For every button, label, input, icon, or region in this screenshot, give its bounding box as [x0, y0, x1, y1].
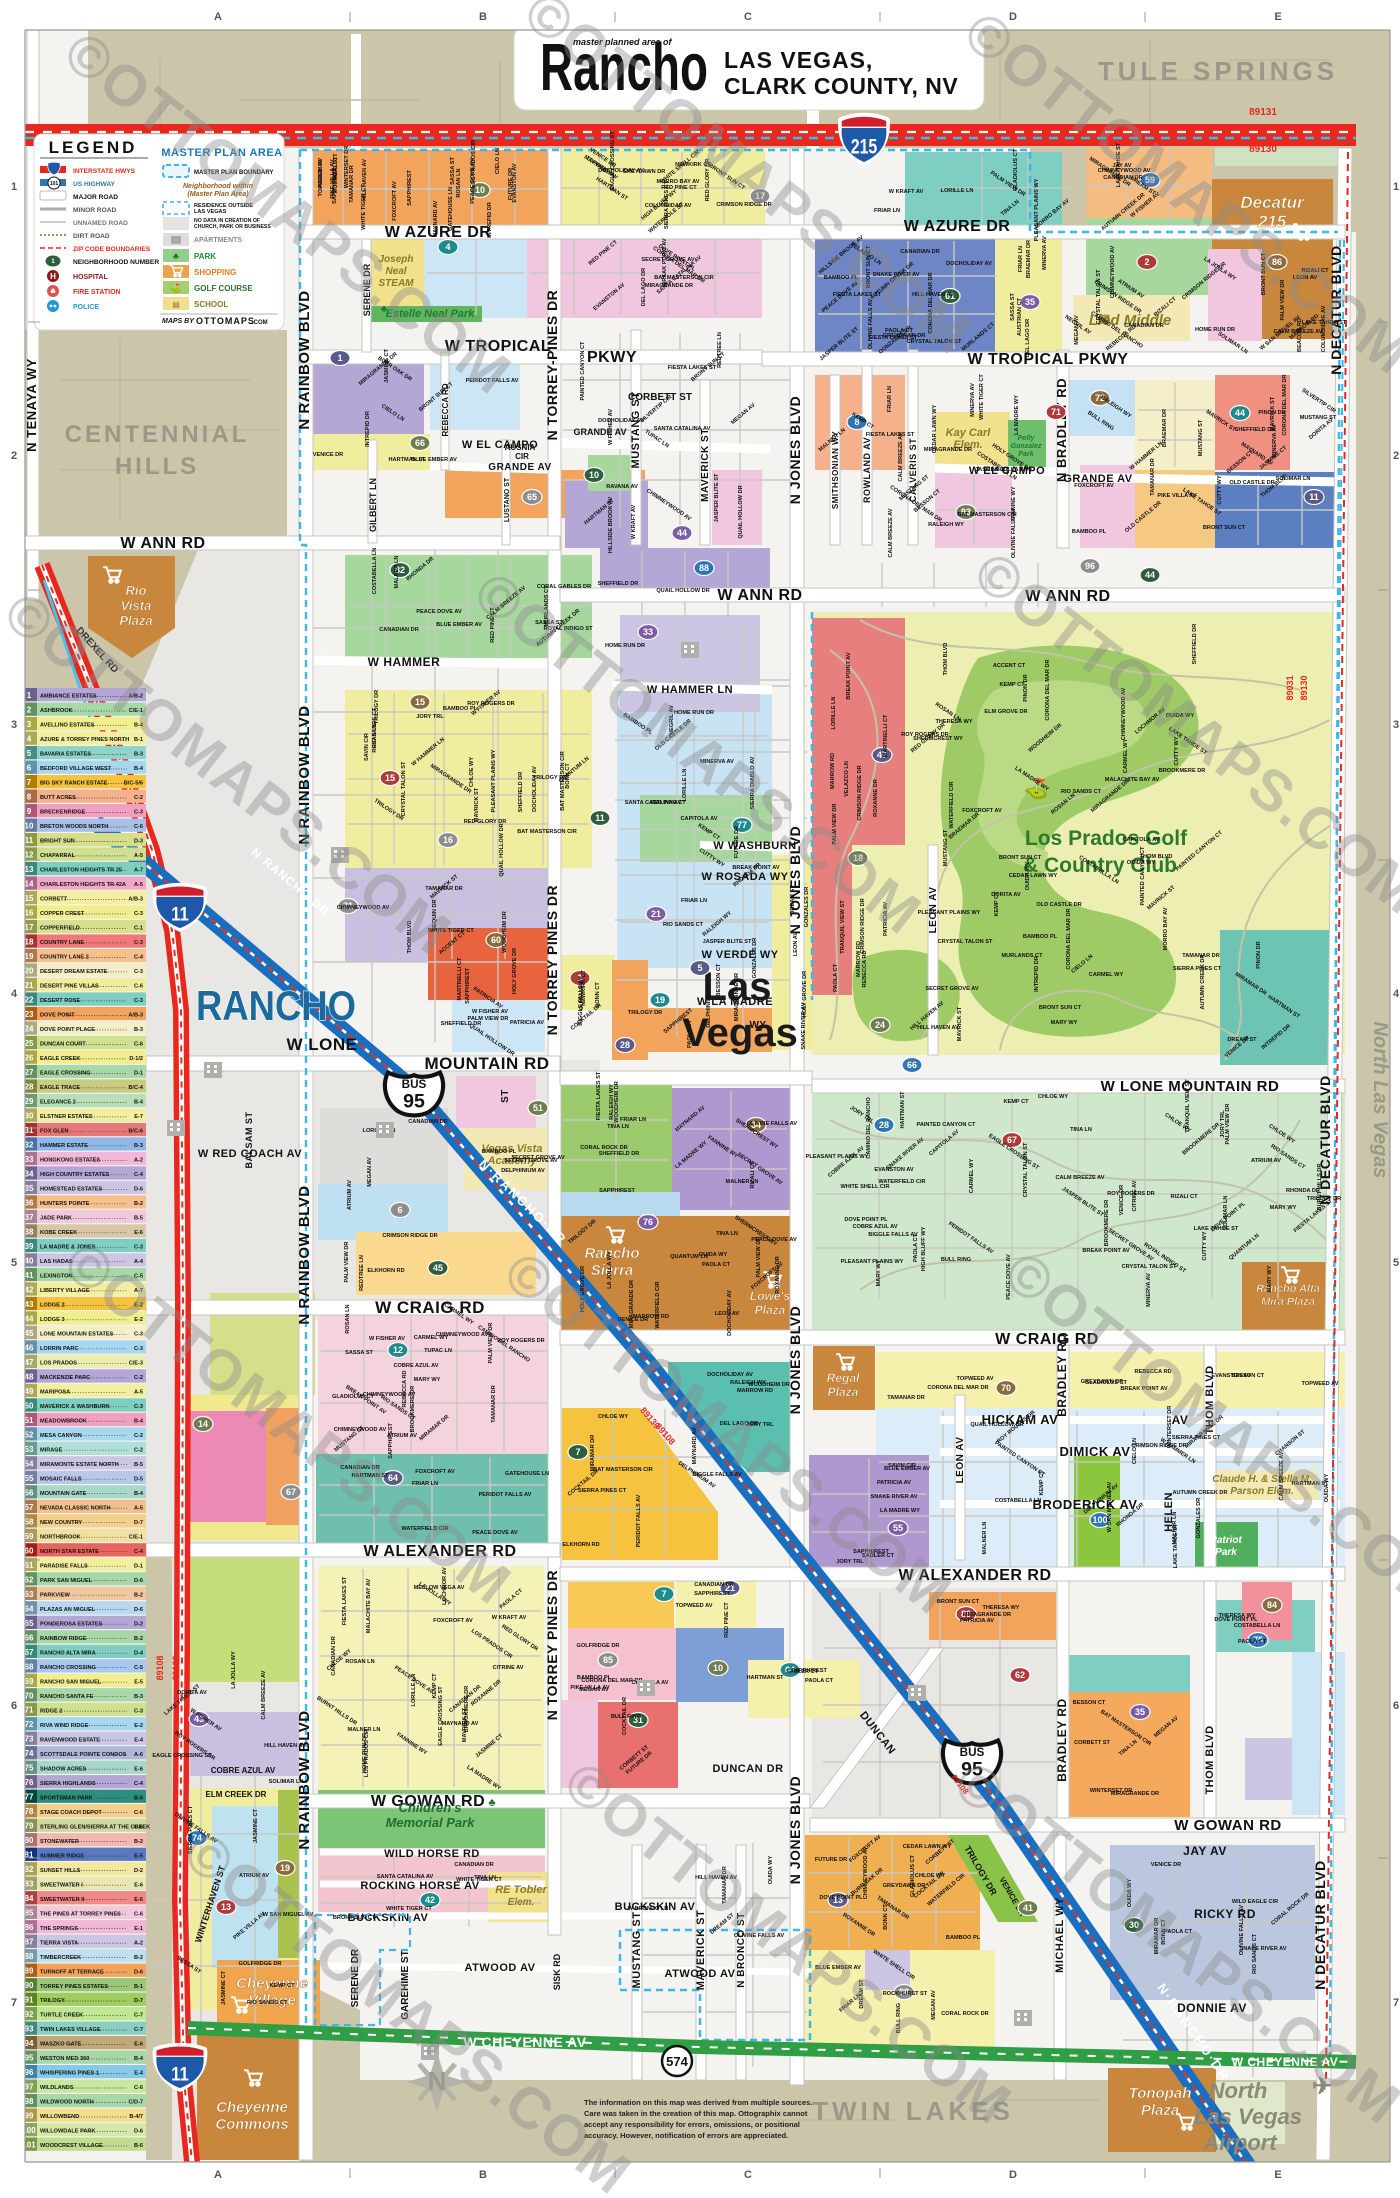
svg-text:66: 66	[907, 1060, 917, 1070]
svg-text:MARROW RD: MARROW RD	[737, 1388, 773, 1394]
svg-text:NORTHBROOK: NORTHBROOK	[40, 1534, 81, 1540]
svg-text:Regal: Regal	[827, 1371, 860, 1385]
svg-text:PAOLA CT: PAOLA CT	[805, 1678, 834, 1684]
svg-text:PATRICIA AV: PATRICIA AV	[510, 1020, 544, 1026]
svg-text:SECRET GROVE AV: SECRET GROVE AV	[925, 986, 978, 992]
svg-text:D-3: D-3	[134, 839, 143, 845]
svg-text:COUNTRY LANE: COUNTRY LANE	[40, 940, 84, 946]
svg-text:6: 6	[397, 1205, 402, 1215]
svg-text:CARMEL WY: CARMEL WY	[1123, 739, 1129, 774]
svg-text:AUTUMN CREEK DR: AUTUMN CREEK DR	[1172, 1490, 1227, 1496]
svg-text:B-5: B-5	[134, 1462, 143, 1468]
svg-text:28: 28	[620, 1040, 630, 1050]
svg-text:SHADOW ACRES: SHADOW ACRES	[40, 1766, 87, 1772]
svg-text:RALEIGH WY: RALEIGH WY	[609, 1084, 615, 1120]
svg-text:INTREPID DR: INTREPID DR	[487, 202, 493, 238]
svg-text:EAGLE TRACE: EAGLE TRACE	[40, 1085, 80, 1091]
svg-text:COBRE AZUL AV: COBRE AZUL AV	[852, 1224, 897, 1230]
svg-text:N RAINBOW BLVD: N RAINBOW BLVD	[296, 290, 313, 429]
svg-text:LEON AV: LEON AV	[955, 1437, 966, 1484]
svg-text:PKWY: PKWY	[587, 349, 637, 366]
svg-text:LOS PRADOS CIR: LOS PRADOS CIR	[471, 140, 477, 188]
svg-text:53: 53	[25, 1445, 34, 1454]
svg-text:89131: 89131	[1249, 107, 1277, 118]
svg-text:A-5: A-5	[134, 1505, 143, 1511]
svg-text:MUSTANG ST: MUSTANG ST	[631, 1912, 643, 1989]
svg-text:A-2: A-2	[134, 1158, 143, 1164]
svg-text:WHITE TIGER CT: WHITE TIGER CT	[386, 1906, 432, 1912]
svg-text:WOODHEIM DR: WOODHEIM DR	[748, 1382, 790, 1388]
svg-text:W FISHER AV: W FISHER AV	[369, 1336, 405, 1342]
svg-text:OUIDA WY: OUIDA WY	[768, 1856, 774, 1885]
svg-text:B-3: B-3	[134, 752, 143, 758]
svg-text:RHONDA DR: RHONDA DR	[1286, 1188, 1320, 1194]
svg-text:52: 52	[25, 1430, 34, 1439]
svg-text:27: 27	[25, 1068, 34, 1077]
svg-text:SNAKE RIVER AV: SNAKE RIVER AV	[801, 1002, 807, 1049]
svg-text:CARMEL WY: CARMEL WY	[1089, 972, 1124, 978]
svg-text:C-3: C-3	[134, 1245, 143, 1251]
svg-text:CRIMSON RIDGE DR: CRIMSON RIDGE DR	[382, 1233, 437, 1239]
svg-text:CANADIAN DR: CANADIAN DR	[454, 1862, 493, 1868]
svg-text:BESSON CT: BESSON CT	[716, 963, 722, 996]
svg-text:LUSTANO ST: LUSTANO ST	[504, 477, 511, 522]
svg-text:50: 50	[25, 1401, 34, 1410]
svg-text:W EL CAMPO: W EL CAMPO	[462, 439, 538, 451]
svg-text:C-3: C-3	[134, 998, 143, 1004]
svg-text:69: 69	[25, 1677, 34, 1686]
svg-text:11: 11	[595, 813, 605, 823]
svg-text:58: 58	[25, 1517, 34, 1526]
svg-text:DELPHINIUM AV: DELPHINIUM AV	[501, 1168, 545, 1174]
svg-text:2: 2	[1393, 450, 1399, 462]
svg-text:REBECCA RD: REBECCA RD	[862, 950, 868, 987]
svg-text:Plaza: Plaza	[828, 1385, 859, 1399]
svg-text:COSTABELLA LN: COSTABELLA LN	[372, 548, 378, 595]
svg-text:101: 101	[50, 181, 59, 187]
svg-text:28: 28	[25, 1083, 34, 1092]
svg-text:29: 29	[25, 1097, 34, 1106]
svg-text:C: C	[744, 2169, 752, 2181]
svg-text:BRONT SUN CT: BRONT SUN CT	[1039, 1005, 1082, 1011]
svg-text:7: 7	[661, 1589, 666, 1599]
svg-text:DUNCAN COURT: DUNCAN COURT	[40, 1042, 86, 1048]
svg-text:ROSAN LN: ROSAN LN	[345, 1659, 374, 1665]
svg-text:GOLFRIDGE DR: GOLFRIDGE DR	[577, 1643, 620, 1649]
svg-text:B/C-4: B/C-4	[128, 1085, 143, 1091]
svg-text:W TROPICAL PKWY: W TROPICAL PKWY	[968, 351, 1129, 368]
svg-text:DREAM ST: DREAM ST	[790, 885, 796, 915]
svg-text:E-6: E-6	[134, 1230, 143, 1236]
svg-text:MAYNARD AV: MAYNARD AV	[442, 1721, 479, 1727]
svg-text:44: 44	[25, 1314, 34, 1323]
svg-text:COPPER CREST: COPPER CREST	[40, 911, 85, 917]
svg-text:B-5: B-5	[134, 1216, 143, 1222]
svg-text:94: 94	[25, 2039, 34, 2048]
svg-text:C-6: C-6	[134, 1042, 143, 1048]
svg-text:TRILOGY DR: TRILOGY DR	[533, 775, 567, 781]
svg-text:BREAK POINT AV: BREAK POINT AV	[846, 652, 852, 700]
svg-text:51: 51	[533, 1103, 543, 1113]
svg-text:B-1: B-1	[134, 1984, 143, 1990]
svg-text:RED PINE CT: RED PINE CT	[661, 185, 697, 191]
svg-text:BONN CT: BONN CT	[595, 982, 601, 1008]
svg-text:N TORREY PINES DR: N TORREY PINES DR	[544, 885, 560, 1035]
svg-text:11: 11	[171, 903, 189, 924]
svg-text:ACCENT CT: ACCENT CT	[993, 663, 1026, 669]
svg-text:MORRO BAY AV: MORRO BAY AV	[1163, 907, 1169, 950]
svg-text:72: 72	[25, 1720, 34, 1729]
svg-text:PATRICIA AV: PATRICIA AV	[960, 1618, 994, 1624]
svg-text:BAT MASTERSON CIR: BAT MASTERSON CIR	[957, 512, 1017, 518]
svg-text:MAVERICK ST: MAVERICK ST	[700, 428, 711, 502]
svg-text:RED PINE CT: RED PINE CT	[724, 1602, 730, 1638]
svg-text:MOUNTAIN GATE: MOUNTAIN GATE	[40, 1491, 87, 1497]
svg-text:CAPITOLA AV: CAPITOLA AV	[1123, 837, 1160, 843]
svg-text:D-1: D-1	[134, 1563, 143, 1569]
svg-text:CALM BREEZE AV: CALM BREEZE AV	[261, 1670, 267, 1719]
svg-text:38: 38	[25, 1227, 34, 1236]
svg-text:DEL LAGO DR: DEL LAGO DR	[641, 268, 647, 306]
svg-text:LEGEND: LEGEND	[49, 138, 138, 157]
svg-text:HOME RUN DR: HOME RUN DR	[1195, 327, 1235, 333]
svg-text:B-2: B-2	[134, 1201, 143, 1207]
svg-text:SOLIMAR LN: SOLIMAR LN	[1276, 476, 1311, 482]
svg-text:ST: ST	[500, 1089, 511, 1103]
svg-text:THOM BLVD: THOM BLVD	[943, 643, 949, 676]
svg-text:C-4: C-4	[134, 1781, 144, 1787]
svg-text:FOXCROFT AV: FOXCROFT AV	[392, 181, 398, 221]
svg-text:W LONE: W LONE	[287, 1035, 358, 1054]
svg-text:JAY AV: JAY AV	[1183, 1844, 1227, 1858]
svg-text:MEGAN AV: MEGAN AV	[367, 1157, 373, 1187]
svg-text:KEMP CT: KEMP CT	[269, 1983, 295, 1989]
svg-text:SASSA ST: SASSA ST	[345, 1350, 373, 1356]
svg-text:DIMICK AV: DIMICK AV	[1060, 1444, 1131, 1459]
svg-text:THE SPRINGS: THE SPRINGS	[40, 1926, 78, 1932]
svg-text:C-2: C-2	[134, 1447, 143, 1453]
svg-text:RIO SANDS CT: RIO SANDS CT	[663, 922, 704, 928]
svg-text:Children's: Children's	[398, 1800, 461, 1815]
svg-text:67: 67	[1007, 1135, 1017, 1145]
svg-text:Las Vegas: Las Vegas	[1194, 2104, 1302, 2129]
svg-text:FRIAR LN: FRIAR LN	[874, 208, 900, 214]
svg-text:▤: ▤	[172, 300, 180, 309]
svg-text:PONDEROSA ESTATES: PONDEROSA ESTATES	[40, 1621, 103, 1627]
svg-text:RAINBOW RIDGE: RAINBOW RIDGE	[40, 1636, 87, 1642]
svg-text:10: 10	[25, 822, 34, 831]
svg-text:RAVENWOOD ESTATE: RAVENWOOD ESTATE	[40, 1737, 100, 1743]
svg-text:75: 75	[25, 1764, 34, 1773]
svg-text:TIMBERCREEK: TIMBERCREEK	[40, 1955, 81, 1961]
svg-text:E-2: E-2	[134, 1723, 143, 1729]
svg-text:C-6: C-6	[134, 2085, 143, 2091]
svg-text:MINERVA AV: MINERVA AV	[970, 383, 976, 417]
svg-text:HARTMAN ST: HARTMAN ST	[900, 1091, 906, 1129]
svg-text:E-6: E-6	[134, 1897, 143, 1903]
svg-text:Patriot: Patriot	[1210, 1535, 1242, 1546]
svg-text:PAOLA CT: PAOLA CT	[702, 1262, 731, 1268]
svg-text:9: 9	[27, 807, 32, 816]
svg-text:ROWLAND AV: ROWLAND AV	[862, 437, 872, 503]
svg-text:89130: 89130	[1299, 675, 1309, 700]
svg-text:AUTUMN CREEK DR: AUTUMN CREEK DR	[1200, 954, 1206, 1009]
svg-text:PLEASANT PLAINS WY: PLEASANT PLAINS WY	[491, 749, 497, 812]
svg-text:RIZALI CT: RIZALI CT	[1170, 1194, 1198, 1200]
svg-text:SHEFFIELD DR: SHEFFIELD DR	[518, 772, 524, 813]
svg-text:TULE SPRINGS: TULE SPRINGS	[1098, 56, 1338, 86]
svg-text:85: 85	[25, 1909, 34, 1918]
svg-text:TURNOFF AT TERRACE: TURNOFF AT TERRACE	[40, 1969, 104, 1975]
svg-text:SASSA ST: SASSA ST	[1010, 293, 1016, 321]
svg-text:MARY WY: MARY WY	[1267, 1265, 1273, 1292]
svg-text:LORILLE LN: LORILLE LN	[941, 188, 974, 194]
svg-text:CAPITOLA AV: CAPITOLA AV	[681, 816, 718, 822]
svg-text:GREYDAWN DR: GREYDAWN DR	[623, 169, 666, 175]
svg-text:4: 4	[27, 735, 32, 744]
svg-text:SASSA ST: SASSA ST	[450, 157, 456, 185]
svg-text:CANADIAN DR: CANADIAN DR	[379, 627, 418, 633]
svg-text:96: 96	[25, 2068, 34, 2077]
svg-text:51: 51	[25, 1416, 34, 1425]
svg-text:D-7: D-7	[134, 1998, 143, 2004]
svg-text:HOLY GROVE DR: HOLY GROVE DR	[512, 948, 518, 994]
svg-text:RIO SANDS CT: RIO SANDS CT	[247, 2000, 288, 2006]
svg-text:56: 56	[25, 1488, 34, 1497]
svg-text:♣: ♣	[488, 1797, 495, 1809]
svg-text:LODGE 3: LODGE 3	[40, 1317, 65, 1323]
svg-text:PEACE DOVE AV: PEACE DOVE AV	[751, 1237, 797, 1243]
svg-text:PINON DR: PINON DR	[1023, 674, 1029, 701]
svg-text:SAPPHIREST: SAPPHIREST	[694, 1591, 730, 1597]
svg-text:KOBE CREEK: KOBE CREEK	[40, 1230, 77, 1236]
svg-text:76: 76	[643, 1217, 653, 1227]
svg-text:H: H	[50, 272, 56, 281]
svg-text:SANTA CATALINA AV: SANTA CATALINA AV	[377, 1874, 434, 1880]
svg-text:TUPAC LN: TUPAC LN	[424, 1348, 452, 1354]
svg-text:BONN CT: BONN CT	[883, 1904, 889, 1930]
svg-text:Tonopah: Tonopah	[1129, 2085, 1192, 2102]
svg-text:W HAMMER: W HAMMER	[368, 655, 441, 669]
svg-text:W VERDE WY: W VERDE WY	[701, 949, 778, 961]
svg-text:HILL HAVEN AV: HILL HAVEN AV	[264, 1743, 306, 1749]
svg-text:BIGGLE FALLS AV: BIGGLE FALLS AV	[868, 1232, 918, 1238]
svg-text:Park: Park	[1018, 451, 1034, 458]
svg-text:15: 15	[385, 773, 395, 783]
svg-text:BAMBOO PL: BAMBOO PL	[1023, 934, 1058, 940]
svg-text:A-6: A-6	[134, 1752, 143, 1758]
svg-text:W FISHER AV: W FISHER AV	[608, 409, 614, 445]
svg-text:MARY WY: MARY WY	[1270, 1205, 1297, 1211]
svg-text:VENICE DR: VENICE DR	[313, 452, 343, 458]
svg-text:C/D-7: C/D-7	[128, 2100, 143, 2106]
svg-text:HILLSIDE BROOK AV: HILLSIDE BROOK AV	[608, 496, 614, 553]
svg-text:HOSPITAL: HOSPITAL	[73, 274, 109, 281]
svg-text:15: 15	[25, 894, 34, 903]
svg-text:FUTURE DR: FUTURE DR	[815, 1857, 847, 1863]
svg-text:CALM BREEZE AV: CALM BREEZE AV	[898, 432, 904, 481]
svg-text:19: 19	[655, 995, 665, 1005]
svg-text:AUSTRIAN CT: AUSTRIAN CT	[1017, 297, 1023, 335]
svg-text:CANADIAN DR: CANADIAN DR	[1124, 323, 1163, 329]
svg-text:A-5: A-5	[134, 1390, 143, 1396]
svg-text:COBRE AZUL AV: COBRE AZUL AV	[211, 1766, 276, 1775]
svg-text:SCOTTSDALE POINTE CONDOS: SCOTTSDALE POINTE CONDOS	[40, 1752, 127, 1758]
svg-text:42: 42	[25, 1285, 34, 1294]
svg-text:GONZALES DR: GONZALES DR	[752, 938, 758, 979]
svg-text:CALM BREEZE AV: CALM BREEZE AV	[1055, 1175, 1104, 1181]
svg-text:W ANN RD: W ANN RD	[717, 587, 802, 604]
svg-text:25: 25	[25, 1039, 34, 1048]
svg-text:67: 67	[286, 1487, 296, 1497]
svg-text:B-2: B-2	[134, 1636, 143, 1642]
svg-text:Lowe's: Lowe's	[750, 1289, 791, 1303]
svg-text:CRYSTAL TALON ST: CRYSTAL TALON ST	[938, 939, 993, 945]
svg-text:PAOLA CT: PAOLA CT	[833, 963, 839, 992]
svg-text:WHITE TIGER CT: WHITE TIGER CT	[979, 374, 985, 420]
svg-text:E-7: E-7	[134, 1114, 143, 1120]
svg-text:C-4: C-4	[134, 1549, 144, 1555]
svg-text:COLUMBIDAE AV: COLUMBIDAE AV	[645, 203, 692, 209]
svg-text:CORAL GABLES DR: CORAL GABLES DR	[537, 584, 591, 590]
svg-text:MIRAGRANDE DR: MIRAGRANDE DR	[963, 1612, 1011, 1618]
svg-text:HIGH BLUFF WY: HIGH BLUFF WY	[921, 1227, 927, 1272]
svg-text:GONZALES DR: GONZALES DR	[1196, 1498, 1202, 1539]
svg-text:23: 23	[25, 1010, 34, 1019]
svg-text:90: 90	[25, 1981, 34, 1990]
svg-text:CAMINO DEL RANCHO: CAMINO DEL RANCHO	[866, 1097, 872, 1159]
svg-text:HONGKONG ESTATES: HONGKONG ESTATES	[40, 1158, 100, 1164]
svg-text:RAVANA AV: RAVANA AV	[606, 484, 638, 490]
svg-text:TAMANAR DR: TAMANAR DR	[887, 1395, 925, 1401]
svg-text:PAOLA CT: PAOLA CT	[1238, 1639, 1267, 1645]
svg-text:CEDAR LAWN WY: CEDAR LAWN WY	[1009, 873, 1058, 879]
svg-text:BAMBOO PL: BAMBOO PL	[482, 1149, 517, 1155]
svg-text:98: 98	[25, 2097, 34, 2106]
svg-text:WILDWOOD NORTH: WILDWOOD NORTH	[40, 2100, 94, 2106]
svg-text:22: 22	[25, 996, 34, 1005]
svg-text:83: 83	[25, 1880, 34, 1889]
svg-text:QUAIL HOLLOW DR: QUAIL HOLLOW DR	[656, 588, 709, 594]
svg-text:D-6: D-6	[134, 1969, 143, 1975]
svg-text:W KRAFT AV: W KRAFT AV	[631, 504, 637, 539]
svg-text:MARY WY: MARY WY	[414, 1377, 441, 1383]
svg-text:97: 97	[25, 2083, 34, 2092]
svg-text:CHLOE WY: CHLOE WY	[1038, 1094, 1068, 1100]
svg-text:PALM VIEW DR: PALM VIEW DR	[468, 1016, 509, 1022]
svg-text:CHLOE WY: CHLOE WY	[469, 757, 475, 787]
svg-text:COSTABELLA LN: COSTABELLA LN	[1234, 1623, 1281, 1629]
svg-text:MAVERICK & WASHBURN: MAVERICK & WASHBURN	[40, 1404, 110, 1410]
svg-text:B-2: B-2	[134, 1955, 143, 1961]
svg-text:SIERRA PINES CT: SIERRA PINES CT	[578, 1488, 627, 1494]
svg-text:THERESA WY: THERESA WY	[1218, 1613, 1255, 1619]
svg-text:C-3: C-3	[134, 1708, 143, 1714]
svg-text:CORONA DEL MAR DR: CORONA DEL MAR DR	[1045, 659, 1051, 720]
svg-text:AZURE & TORREY PINES NORTH: AZURE & TORREY PINES NORTH	[40, 737, 129, 743]
svg-text:WILD HORSE RD: WILD HORSE RD	[384, 1848, 480, 1860]
svg-text:BAVARIA ESTATES: BAVARIA ESTATES	[40, 752, 91, 758]
svg-text:ATWOOD AV: ATWOOD AV	[465, 1962, 536, 1974]
svg-text:A: A	[214, 2169, 222, 2181]
svg-text:BIGGLE FALLS AV: BIGGLE FALLS AV	[578, 976, 584, 1026]
svg-text:35: 35	[1135, 1707, 1145, 1717]
svg-text:DUNCAN DR: DUNCAN DR	[712, 1763, 783, 1775]
svg-text:HILL HAVEN AV: HILL HAVEN AV	[917, 1025, 959, 1031]
svg-text:MALACHITE BAY AV: MALACHITE BAY AV	[1105, 777, 1160, 783]
svg-text:CIELO LN: CIELO LN	[1132, 1438, 1138, 1464]
svg-text:ELM CREEK DR: ELM CREEK DR	[206, 1790, 267, 1799]
svg-text:HARTMAN ST: HARTMAN ST	[389, 457, 427, 463]
svg-text:JASMINE CT: JASMINE CT	[221, 1970, 227, 2004]
svg-text:MAVRICK ST: MAVRICK ST	[462, 1707, 468, 1742]
svg-text:41: 41	[25, 1271, 34, 1280]
svg-text:LEON AV: LEON AV	[715, 1311, 740, 1317]
svg-text:74: 74	[25, 1749, 34, 1758]
svg-text:5: 5	[697, 963, 702, 973]
svg-text:Kay Carl: Kay Carl	[946, 427, 992, 439]
svg-text:SAVIN CIR: SAVIN CIR	[888, 1463, 916, 1469]
svg-text:11: 11	[171, 2063, 189, 2084]
svg-text:PLEASANT PLAINS WY: PLEASANT PLAINS WY	[1034, 178, 1040, 241]
svg-text:TINA LN: TINA LN	[607, 1124, 629, 1130]
svg-text:CORONA DEL MAR DR: CORONA DEL MAR DR	[1066, 908, 1072, 969]
svg-text:CORONA DEL MAR DR: CORONA DEL MAR DR	[1282, 374, 1288, 435]
svg-text:CRYSTAL TALON ST: CRYSTAL TALON ST	[1096, 269, 1102, 324]
svg-text:⛳: ⛳	[170, 282, 181, 294]
svg-text:PERIDOT FALLS AV: PERIDOT FALLS AV	[479, 1492, 532, 1498]
svg-text:70: 70	[25, 1691, 34, 1700]
svg-text:COPPERFIELD: COPPERFIELD	[40, 926, 80, 932]
svg-text:CORBETT ST: CORBETT ST	[1074, 1740, 1110, 1746]
svg-text:4: 4	[445, 242, 450, 252]
svg-text:CANADIAN DR: CANADIAN DR	[900, 249, 939, 255]
svg-text:2: 2	[11, 450, 17, 462]
svg-text:B-3: B-3	[134, 1694, 143, 1700]
svg-text:BESSON CT: BESSON CT	[1073, 1700, 1106, 1706]
svg-text:APARTMENTS: APARTMENTS	[194, 237, 242, 244]
svg-text:C-6: C-6	[134, 1824, 143, 1830]
svg-text:TAMANAR DR: TAMANAR DR	[1150, 458, 1156, 496]
svg-text:C-2: C-2	[134, 1375, 143, 1381]
svg-text:FIESTA LAKES ST: FIESTA LAKES ST	[596, 1071, 602, 1120]
svg-text:B/C-5/6: B/C-5/6	[124, 781, 143, 787]
svg-text:SAPPHIREST: SAPPHIREST	[465, 968, 471, 1004]
svg-text:PARK: PARK	[194, 252, 216, 261]
svg-text:46: 46	[25, 1343, 34, 1352]
svg-text:E-5: E-5	[134, 1853, 143, 1859]
svg-text:OTTOMAPS: OTTOMAPS	[196, 316, 255, 326]
svg-text:FRIAR LN: FRIAR LN	[887, 386, 893, 412]
svg-text:49: 49	[25, 1387, 34, 1396]
svg-text:99: 99	[25, 2112, 34, 2121]
svg-text:CUTTY WY: CUTTY WY	[1217, 475, 1223, 504]
svg-text:PEACE DOVE AV: PEACE DOVE AV	[416, 609, 462, 615]
svg-text:85: 85	[603, 1655, 613, 1665]
svg-text:NEIGHBORHOOD NUMBER: NEIGHBORHOOD NUMBER	[73, 259, 159, 266]
svg-text:SAVIN CIR: SAVIN CIR	[364, 733, 370, 761]
svg-text:Polly: Polly	[1018, 435, 1036, 442]
svg-text:12: 12	[25, 851, 34, 860]
svg-text:QUAIL HOLLOW DR: QUAIL HOLLOW DR	[499, 823, 505, 876]
svg-text:B-4: B-4	[134, 1491, 144, 1497]
svg-text:67: 67	[25, 1648, 34, 1657]
svg-text:INTREPID DR: INTREPID DR	[1034, 956, 1040, 992]
svg-text:Vegas: Vegas	[682, 1011, 798, 1055]
svg-text:EVANSTON AV: EVANSTON AV	[1211, 1373, 1251, 1379]
svg-text:39: 39	[25, 1242, 34, 1251]
svg-text:68: 68	[25, 1662, 34, 1671]
